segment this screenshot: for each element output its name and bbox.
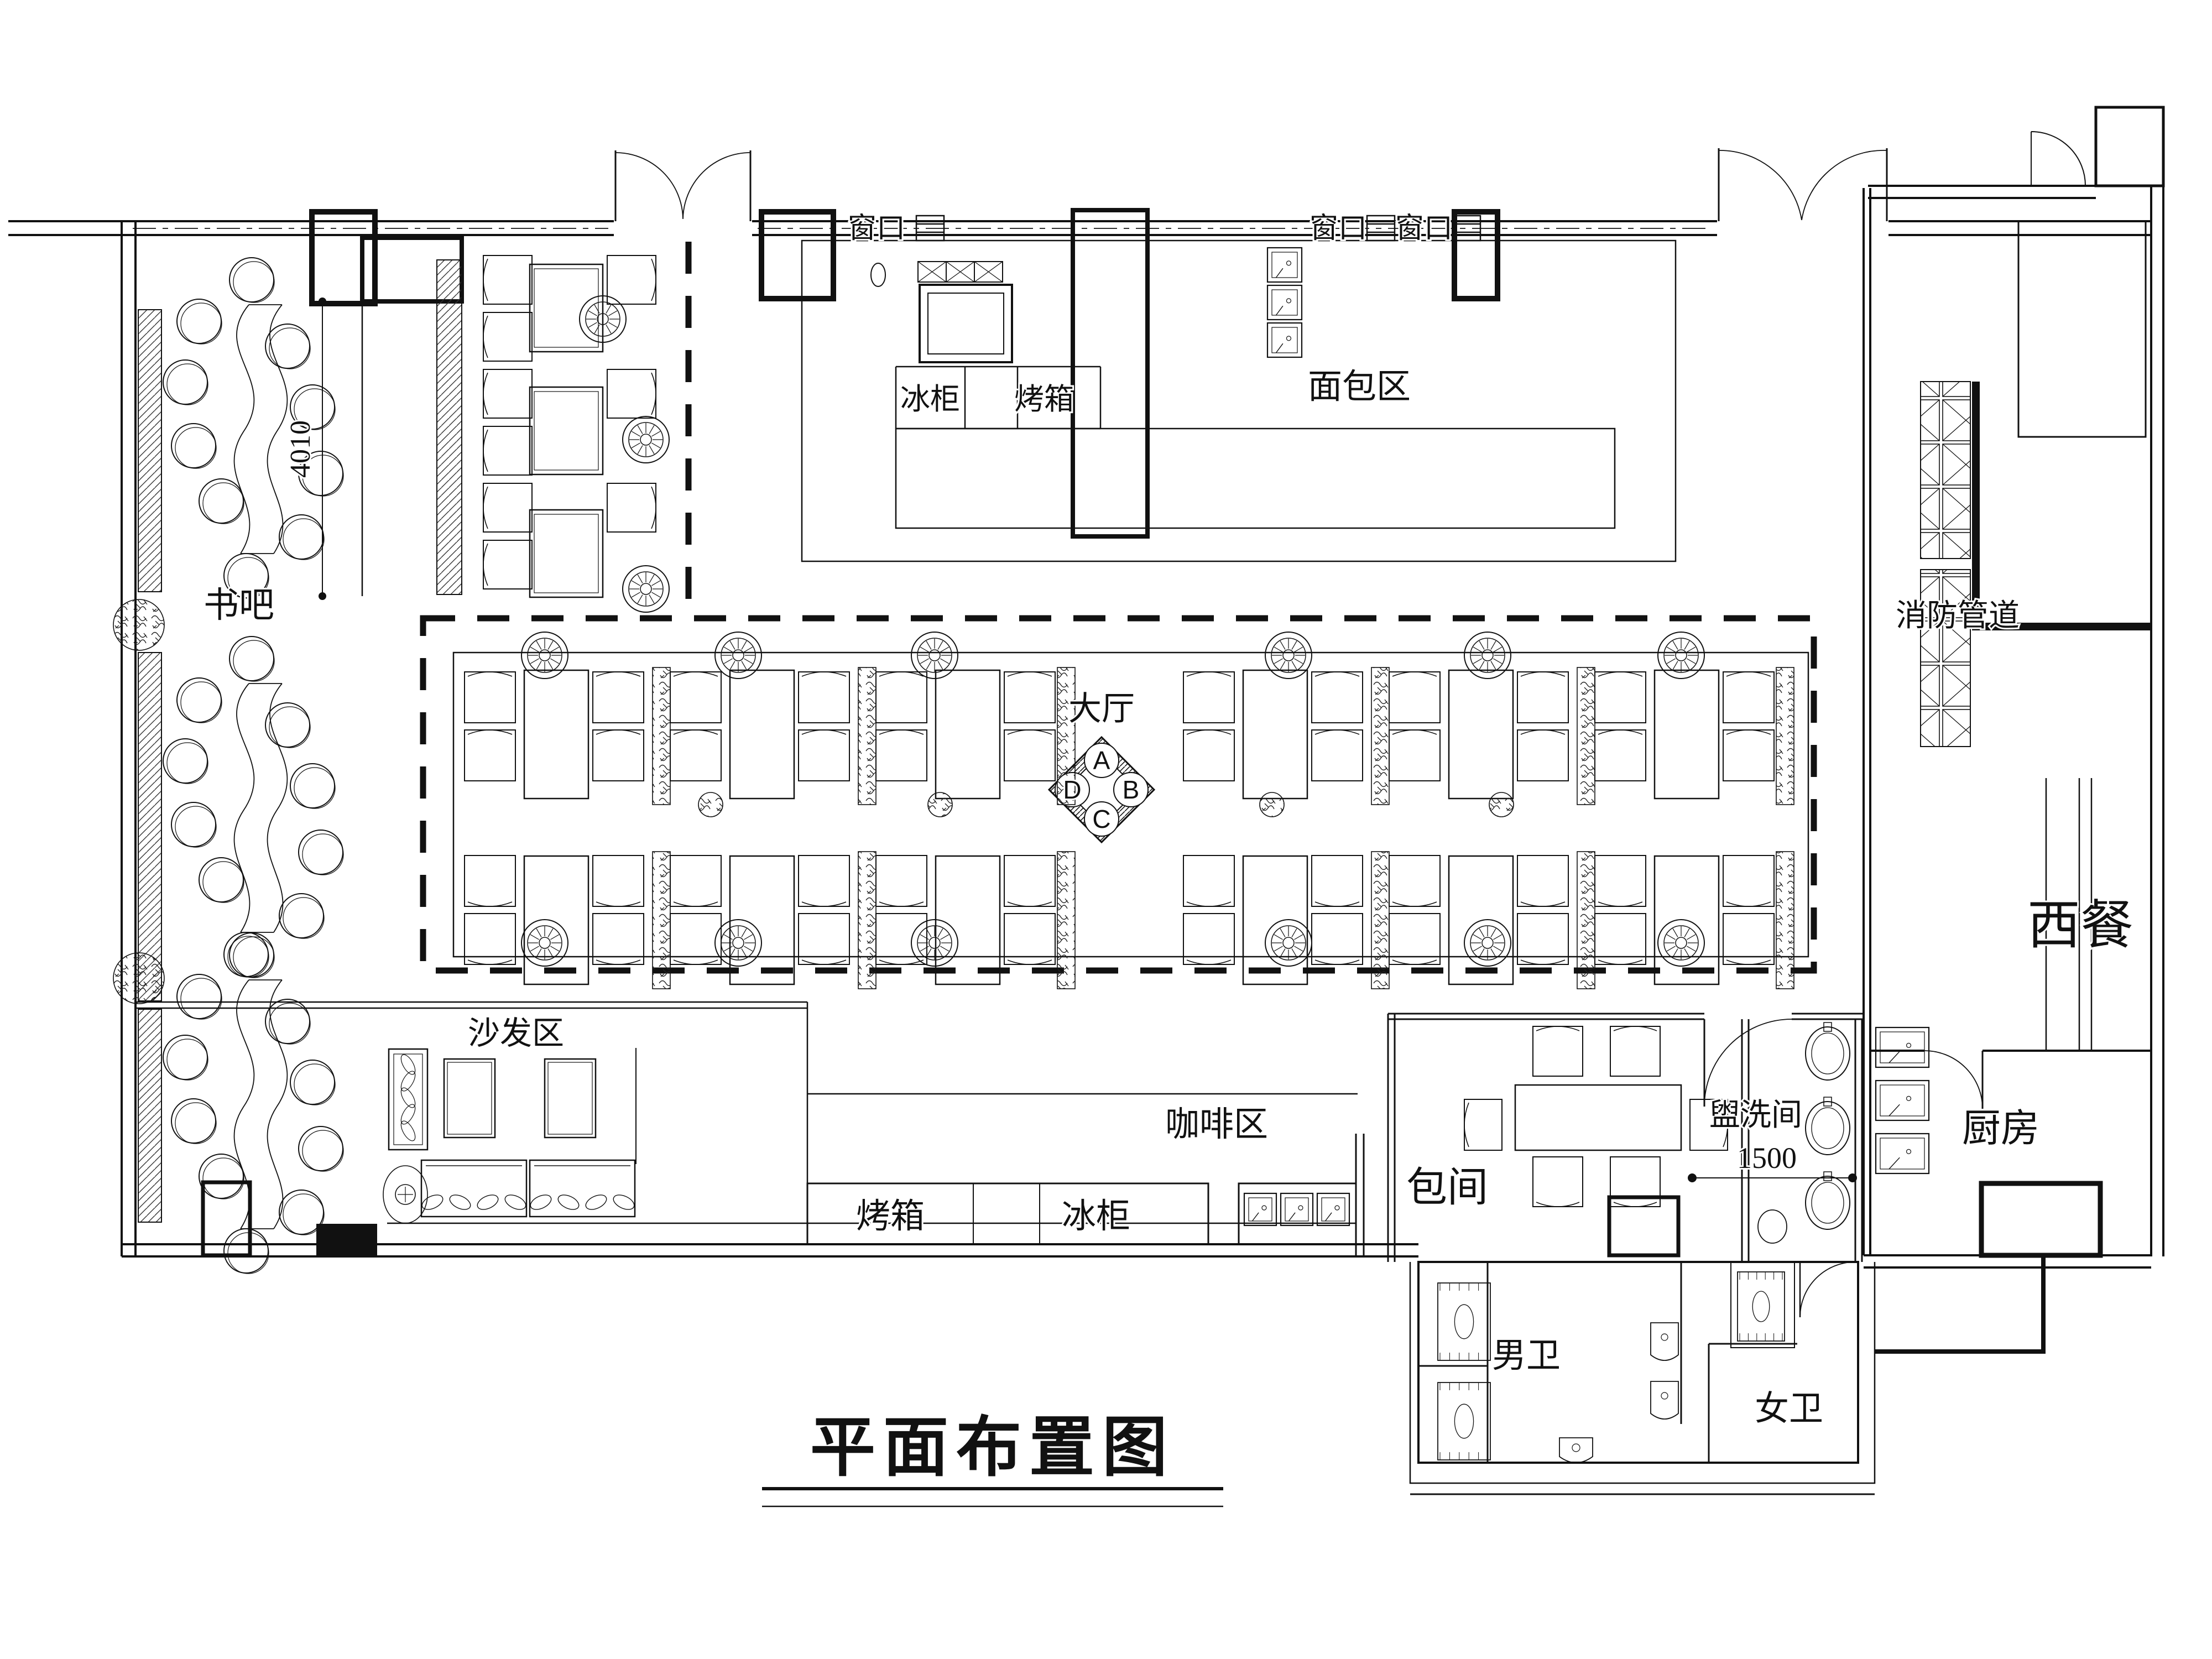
- sink: [1880, 1085, 1924, 1116]
- stool: [279, 1190, 324, 1234]
- line: [1473, 659, 1482, 664]
- line: [548, 948, 553, 957]
- sink: [1267, 323, 1302, 357]
- sink-hole: [1286, 336, 1291, 341]
- chair-back: [1315, 960, 1359, 964]
- cushion: [447, 1192, 473, 1213]
- label-washroom: 盥洗间: [1709, 1097, 1802, 1132]
- chair-back: [468, 902, 512, 906]
- line: [920, 935, 929, 940]
- chair-back: [651, 487, 656, 529]
- line: [744, 659, 753, 664]
- chair: [1183, 730, 1234, 781]
- chair-back: [483, 430, 488, 472]
- line: [1493, 647, 1502, 652]
- plant-icon: [1260, 792, 1284, 817]
- line: [548, 928, 553, 937]
- line: [1294, 935, 1303, 940]
- cushion: [556, 1192, 581, 1213]
- line: [608, 311, 617, 316]
- stool: [233, 262, 274, 302]
- label-fire-duct: 消防管道: [1896, 598, 2020, 633]
- line: [1684, 641, 1689, 650]
- walls-group: [8, 107, 2163, 1506]
- line: [1667, 935, 1676, 940]
- line: [550, 935, 559, 940]
- urinal: [1661, 1334, 1668, 1340]
- line: [1687, 946, 1695, 951]
- line: [1292, 948, 1297, 957]
- chair: [465, 855, 515, 906]
- cabinet-x: [974, 262, 1003, 282]
- chair-back: [1187, 730, 1231, 734]
- line: [1687, 659, 1695, 664]
- fan-icon: [1283, 937, 1294, 948]
- chair-back: [596, 960, 640, 964]
- line: [1280, 641, 1285, 650]
- stool: [269, 1003, 310, 1044]
- squat-toilet: [1738, 1272, 1785, 1341]
- line: [651, 592, 660, 597]
- couch: [421, 1160, 526, 1217]
- line: [724, 659, 733, 664]
- line: [1274, 946, 1283, 951]
- line: [1294, 659, 1303, 664]
- chair-back: [1726, 960, 1771, 964]
- line: [649, 425, 654, 434]
- stool: [175, 806, 216, 847]
- stool: [229, 637, 274, 681]
- chair: [483, 255, 532, 304]
- chair: [1533, 1026, 1583, 1076]
- line: [550, 946, 559, 951]
- chair: [670, 730, 721, 781]
- stool: [181, 978, 222, 1019]
- chair-back: [1392, 672, 1437, 676]
- chair-back: [483, 373, 488, 415]
- urinal: [1661, 1392, 1668, 1399]
- pedestal-basin: [1559, 1438, 1593, 1463]
- chair-back: [1187, 902, 1231, 906]
- chair: [876, 855, 927, 906]
- chair-back: [1187, 672, 1231, 676]
- label-womens-toilet: 女卫: [1755, 1390, 1823, 1428]
- stool: [229, 258, 274, 302]
- chair-back: [651, 259, 656, 301]
- basin-small: [1758, 1210, 1787, 1243]
- chair: [1183, 672, 1234, 723]
- line: [938, 948, 943, 957]
- stool: [299, 1126, 343, 1171]
- line: [638, 575, 643, 583]
- table: [534, 269, 598, 347]
- stool: [181, 303, 222, 344]
- urinal: [1651, 1381, 1678, 1419]
- cushion: [420, 1192, 445, 1213]
- dim-book-bar-depth: 4010: [285, 420, 316, 478]
- stool: [175, 427, 216, 468]
- line: [651, 431, 660, 436]
- line: [742, 948, 747, 957]
- label-window-1: 窗口: [848, 212, 905, 244]
- chair-back: [1521, 960, 1565, 964]
- fan-icon: [640, 434, 651, 445]
- line: [649, 594, 654, 603]
- table: [444, 1059, 495, 1138]
- squat-pan: [1454, 1305, 1473, 1339]
- chair: [1312, 730, 1363, 781]
- basin: [1806, 1176, 1850, 1229]
- stool: [177, 678, 221, 722]
- furniture-group: [113, 248, 1929, 1463]
- line: [1673, 948, 1678, 957]
- chair: [876, 730, 927, 781]
- sink: [1267, 285, 1302, 320]
- chair-back: [1726, 902, 1771, 906]
- fan-icon: [929, 650, 940, 661]
- chair-back: [468, 730, 512, 734]
- chair-back: [1315, 672, 1359, 676]
- stool: [233, 640, 274, 681]
- table: [534, 514, 598, 593]
- sink: [1317, 1193, 1349, 1225]
- line: [744, 946, 753, 951]
- line: [1292, 641, 1297, 650]
- chair-back: [1598, 730, 1642, 734]
- line: [920, 647, 929, 652]
- planter-strip: [653, 852, 670, 989]
- compass-c: C: [1092, 805, 1110, 833]
- line: [1889, 1157, 1900, 1169]
- line: [594, 325, 599, 333]
- sink: [1285, 1198, 1308, 1221]
- chair-back: [1598, 902, 1642, 906]
- sink-hole: [1907, 1149, 1911, 1154]
- chair: [1389, 730, 1440, 781]
- line: [548, 641, 553, 650]
- line: [1687, 935, 1695, 940]
- hall-table: [1655, 670, 1719, 799]
- chair-back: [483, 487, 488, 529]
- chair-back: [1187, 960, 1231, 964]
- chair-back: [1536, 1026, 1579, 1031]
- label-freezer-bakery: 冰柜: [900, 383, 960, 416]
- line: [940, 935, 949, 940]
- line: [938, 661, 943, 670]
- basin: [1812, 1033, 1844, 1074]
- hall-table: [936, 856, 1000, 984]
- stool: [283, 1194, 324, 1235]
- stool: [163, 360, 207, 404]
- chair: [1723, 730, 1774, 781]
- cabinet-x: [918, 262, 946, 282]
- urinal: [1651, 1323, 1678, 1360]
- chair: [483, 540, 532, 589]
- line: [1491, 641, 1496, 650]
- table: [548, 1062, 592, 1134]
- line: [1274, 647, 1283, 652]
- stool: [171, 802, 216, 847]
- line: [1479, 641, 1484, 650]
- line: [1479, 661, 1484, 670]
- sink: [1272, 252, 1297, 278]
- planter-strip: [653, 667, 670, 805]
- line: [536, 928, 541, 937]
- line: [1276, 343, 1283, 353]
- chair: [483, 483, 532, 532]
- stool: [279, 894, 324, 938]
- line: [1684, 928, 1689, 937]
- chair: [1004, 730, 1055, 781]
- stool: [199, 858, 243, 902]
- line: [1491, 948, 1496, 957]
- sink: [1880, 1032, 1924, 1063]
- line: [606, 305, 611, 314]
- line: [920, 946, 929, 951]
- hall-table: [1243, 856, 1307, 984]
- sink: [1876, 1027, 1929, 1067]
- line: [1294, 647, 1303, 652]
- chair-back: [1315, 730, 1359, 734]
- sink: [1880, 1138, 1924, 1169]
- line: [920, 659, 929, 664]
- chair-back: [1008, 902, 1052, 906]
- stool: [167, 743, 208, 784]
- pedestal-basin: [1572, 1444, 1580, 1452]
- planter-strip: [858, 667, 876, 805]
- stool: [171, 1099, 216, 1143]
- stool: [265, 999, 310, 1044]
- chair: [607, 369, 656, 418]
- chair: [1312, 672, 1363, 723]
- line: [1276, 268, 1283, 278]
- compass-a: A: [1093, 746, 1110, 775]
- line: [1274, 935, 1283, 940]
- line: [940, 946, 949, 951]
- stool: [294, 1064, 335, 1105]
- planter-strip: [858, 852, 876, 989]
- chair: [1595, 730, 1646, 781]
- label-main-hall: 大厅: [1068, 690, 1135, 727]
- plant-icon: [928, 792, 952, 817]
- floor-plan: 窗口 窗口 窗口 冰柜 烤箱 面包区 书吧 大厅 消防管道 西餐 沙发区 咖啡区…: [0, 0, 2212, 1659]
- line: [649, 575, 654, 583]
- line: [550, 647, 559, 652]
- chair-back: [1315, 902, 1359, 906]
- fan-icon: [539, 650, 550, 661]
- line: [724, 946, 733, 951]
- sink: [1249, 1198, 1272, 1221]
- line: [1479, 948, 1484, 957]
- chair-back: [802, 960, 846, 964]
- chair-back: [802, 730, 846, 734]
- chair: [1533, 1157, 1583, 1207]
- line: [940, 659, 949, 664]
- stool: [203, 862, 244, 902]
- line: [632, 592, 640, 597]
- chair-back: [468, 672, 512, 676]
- label-kitchen: 厨房: [1962, 1107, 2039, 1150]
- line: [1493, 946, 1502, 951]
- label-window-3: 窗口: [1395, 212, 1453, 244]
- stool: [224, 932, 268, 977]
- plant-icon: [113, 599, 164, 650]
- plant-icon: [698, 792, 723, 817]
- chair-back: [802, 672, 846, 676]
- hall-table: [524, 856, 588, 984]
- label-book-bar: 书吧: [204, 585, 274, 625]
- chair: [483, 426, 532, 475]
- chair: [670, 855, 721, 906]
- stool: [290, 764, 335, 808]
- label-oven-bakery: 烤箱: [1014, 383, 1074, 416]
- line: [530, 647, 539, 652]
- chair: [1389, 855, 1440, 906]
- fan-icon: [1676, 650, 1687, 661]
- line: [1276, 306, 1283, 315]
- fan-icon: [733, 650, 744, 661]
- line: [730, 641, 735, 650]
- basin: [1806, 1102, 1850, 1155]
- line: [1667, 647, 1676, 652]
- chair-back: [596, 902, 640, 906]
- line: [1667, 659, 1676, 664]
- line: [1280, 928, 1285, 937]
- planter-strip: [1577, 852, 1595, 989]
- chair-back: [674, 730, 718, 734]
- line: [1673, 641, 1678, 650]
- line: [536, 641, 541, 650]
- table: [534, 392, 598, 470]
- line: [1491, 661, 1496, 670]
- line: [1684, 661, 1689, 670]
- basin: [1812, 1182, 1844, 1223]
- sink-hole: [1262, 1206, 1266, 1210]
- fan-icon: [539, 937, 550, 948]
- chair: [465, 730, 515, 781]
- line: [638, 445, 643, 454]
- line: [724, 647, 733, 652]
- cushion: [611, 1192, 637, 1213]
- hall-table: [1243, 670, 1307, 799]
- planter-strip: [1776, 852, 1794, 989]
- stool: [269, 707, 310, 748]
- chair: [876, 672, 927, 723]
- line: [1493, 935, 1502, 940]
- chair-back: [1598, 672, 1642, 676]
- chair: [1517, 672, 1568, 723]
- stool: [177, 974, 221, 1019]
- chair-back: [1008, 672, 1052, 676]
- stool: [199, 479, 243, 523]
- chair: [1517, 855, 1568, 906]
- stool: [167, 1039, 208, 1080]
- line: [1292, 661, 1297, 670]
- line: [536, 948, 541, 957]
- basin: [1806, 1027, 1850, 1080]
- stool: [163, 739, 207, 783]
- chair: [1610, 1026, 1660, 1076]
- line: [1491, 928, 1496, 937]
- chair: [1312, 855, 1363, 906]
- chair-back: [1536, 1202, 1579, 1207]
- stool: [302, 834, 343, 875]
- label-oven-coffee: 烤箱: [856, 1197, 925, 1235]
- chair-back: [483, 544, 488, 586]
- stool: [163, 1035, 207, 1079]
- line: [638, 425, 643, 434]
- fan-icon: [1482, 937, 1493, 948]
- planter-strip: [1371, 852, 1389, 989]
- chair-back: [879, 672, 924, 676]
- stool: [265, 703, 310, 747]
- table: [530, 510, 603, 597]
- hall-table: [524, 670, 588, 799]
- line: [588, 322, 597, 327]
- sink-hole: [1298, 1206, 1303, 1210]
- stool: [283, 519, 324, 560]
- line: [1326, 1213, 1332, 1221]
- chair: [593, 855, 644, 906]
- line: [742, 661, 747, 670]
- chair: [593, 730, 644, 781]
- line: [632, 581, 640, 586]
- fan-icon: [1482, 650, 1493, 661]
- chair: [670, 672, 721, 723]
- stool: [229, 933, 274, 977]
- planter-strip: [1776, 667, 1794, 805]
- line: [742, 928, 747, 937]
- label-coffee-area: 咖啡区: [1165, 1105, 1268, 1144]
- line: [938, 641, 943, 650]
- chair-back: [1614, 1202, 1657, 1207]
- line: [1667, 946, 1676, 951]
- stool: [279, 515, 324, 559]
- line: [536, 661, 541, 670]
- chair: [1723, 672, 1774, 723]
- sink-hole: [1286, 299, 1291, 303]
- line: [744, 935, 753, 940]
- line: [742, 641, 747, 650]
- chair-back: [879, 902, 924, 906]
- line: [548, 661, 553, 670]
- line: [1687, 647, 1695, 652]
- line: [608, 322, 617, 327]
- stool: [175, 1103, 216, 1144]
- chair: [465, 672, 515, 723]
- stool: [181, 682, 222, 723]
- line: [550, 659, 559, 664]
- line: [1673, 661, 1678, 670]
- sink-hole: [1286, 261, 1291, 265]
- chair: [799, 855, 849, 906]
- stool: [269, 328, 310, 369]
- sink: [1281, 1193, 1313, 1225]
- cushion: [475, 1192, 500, 1213]
- line: [730, 928, 735, 937]
- compass-b: B: [1123, 775, 1140, 804]
- chair: [1464, 1099, 1502, 1150]
- line: [594, 305, 599, 314]
- fan-icon: [929, 937, 940, 948]
- table: [530, 264, 603, 352]
- fan-icon: [1676, 937, 1687, 948]
- line: [938, 928, 943, 937]
- chair-back: [1392, 730, 1437, 734]
- squat-toilet: [1438, 1283, 1490, 1360]
- chair-back: [879, 960, 924, 964]
- line: [651, 443, 660, 448]
